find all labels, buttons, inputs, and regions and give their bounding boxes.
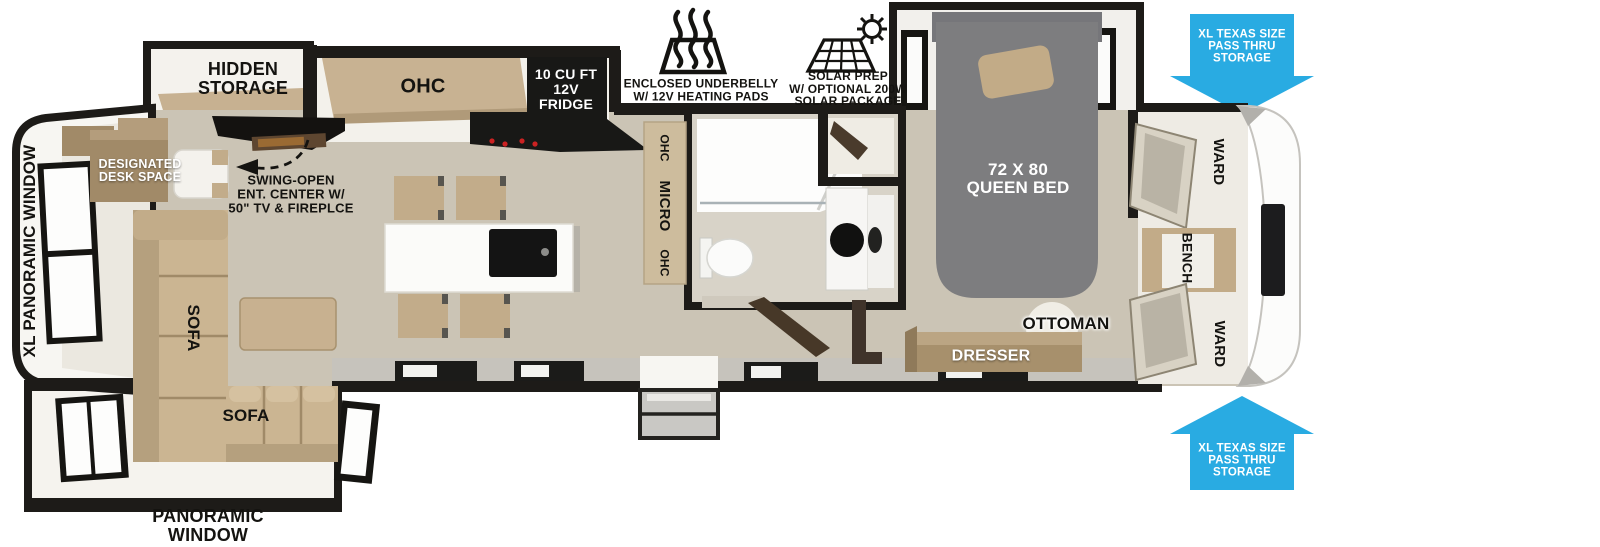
chair-arm [212,183,228,198]
window-pane [521,365,549,377]
faucet [541,248,549,256]
label-xl-panoramic-window: XL PANORAMIC WINDOW [21,145,39,358]
living-ottoman [240,298,336,350]
window-pane [751,366,781,378]
label-fridge: 10 CU FT 12V FRIDGE [535,67,597,111]
panel-line [841,40,842,71]
window-pane [90,400,121,474]
label-solar: SOLAR PREP W/ OPTIONAL 200W SOLAR PACKAG… [789,70,907,108]
label-hidden-storage: HIDDEN STORAGE [198,60,288,98]
toilet [707,239,753,277]
wall-kitchen-top [306,46,620,58]
panoramic-window-left [55,394,129,483]
label-bench: BENCH [1180,233,1195,284]
label-ohc-upper: OHC [658,134,671,161]
chair-seat [460,294,510,338]
front-window [1261,204,1285,296]
cushion-front [229,386,261,402]
window-pane [62,402,92,476]
kitchen [317,57,648,152]
heating-pads-icon [662,10,724,72]
chair-leg [442,328,448,338]
label-ohc-lower: OHC [658,249,671,276]
rv-floorplan: HIDDEN STORAGE OHC 10 CU FT 12V FRIDGE E… [0,0,1600,547]
burner [502,141,507,146]
dryer-door [868,227,882,253]
chair-arm [212,150,228,165]
solar-panel-icon [808,14,887,71]
dresser-top [905,332,1082,345]
desk-hutch [118,118,168,134]
label-sofa-horizontal: SOFA [222,407,269,425]
sofa-arm [133,210,228,240]
dining-chair [456,176,506,220]
window [514,361,584,381]
sun-circle [864,21,881,38]
chair-leg [500,176,506,186]
arrow-head-up [1170,396,1314,434]
label-swing-open: SWING-OPEN ENT. CENTER W/ 50" TV & FIREP… [228,173,353,214]
dining-chair [394,176,444,220]
label-ohc-kitchen: OHC [400,76,445,97]
chair-leg [504,328,510,338]
label-pass-thru-top: XL TEXAS SIZE PASS THRU STORAGE [1198,29,1285,66]
wall-bottom-rear [30,378,138,391]
entry-steps [640,390,718,438]
chair-leg [442,294,448,304]
wall-bottom [332,381,1162,392]
label-underbelly: ENCLOSED UNDERBELLY W/ 12V HEATING PADS [624,77,779,102]
washer-door [830,223,864,257]
burner [519,138,524,143]
wardrobe-mirror [1140,293,1188,368]
label-panoramic-window: PANORAMIC WINDOW [152,507,263,545]
chair-seat [394,176,444,220]
island-shadow [573,226,580,292]
chair-seat [456,176,506,220]
label-designated-desk: DESIGNATED DESK SPACE [98,158,181,185]
label-ward-bottom: WARD [1211,321,1227,368]
desk-chair [174,150,228,198]
label-queen-bed: 72 X 80 QUEEN BED [967,161,1070,197]
label-ottoman: OTTOMAN [1022,315,1109,333]
sofa-back-bottom [226,444,338,462]
bath-divider-v [818,110,828,184]
sofa-back-left [133,210,159,462]
cushion-front [303,386,335,402]
burner [532,141,537,146]
chair-leg [438,176,444,186]
window [744,362,818,382]
dining-chair [398,294,448,338]
bath-divider-h [818,177,902,186]
step-highlight [647,394,711,401]
label-dresser: DRESSER [952,349,1031,366]
label-micro: MICRO [656,181,672,232]
dining-chair [460,294,510,338]
label-ward-top: WARD [1210,139,1226,186]
window-pane [403,365,437,377]
window-mullion [45,252,95,255]
label-pass-thru-bottom: XL TEXAS SIZE PASS THRU STORAGE [1198,443,1285,480]
cushion-front [266,386,298,402]
chair-leg [438,210,444,220]
wall-kitchen-step [608,50,621,112]
window-pane [907,37,922,103]
chair-leg [504,294,510,304]
burner [489,138,494,143]
dresser-end [905,326,917,372]
wardrobe-bottom [1130,284,1196,380]
chair-seat [398,294,448,338]
chair-leg [500,210,506,220]
label-sofa-vertical: SOFA [184,304,202,351]
closet-panel-h [852,352,882,364]
window [395,361,477,381]
bathroom [688,110,902,308]
